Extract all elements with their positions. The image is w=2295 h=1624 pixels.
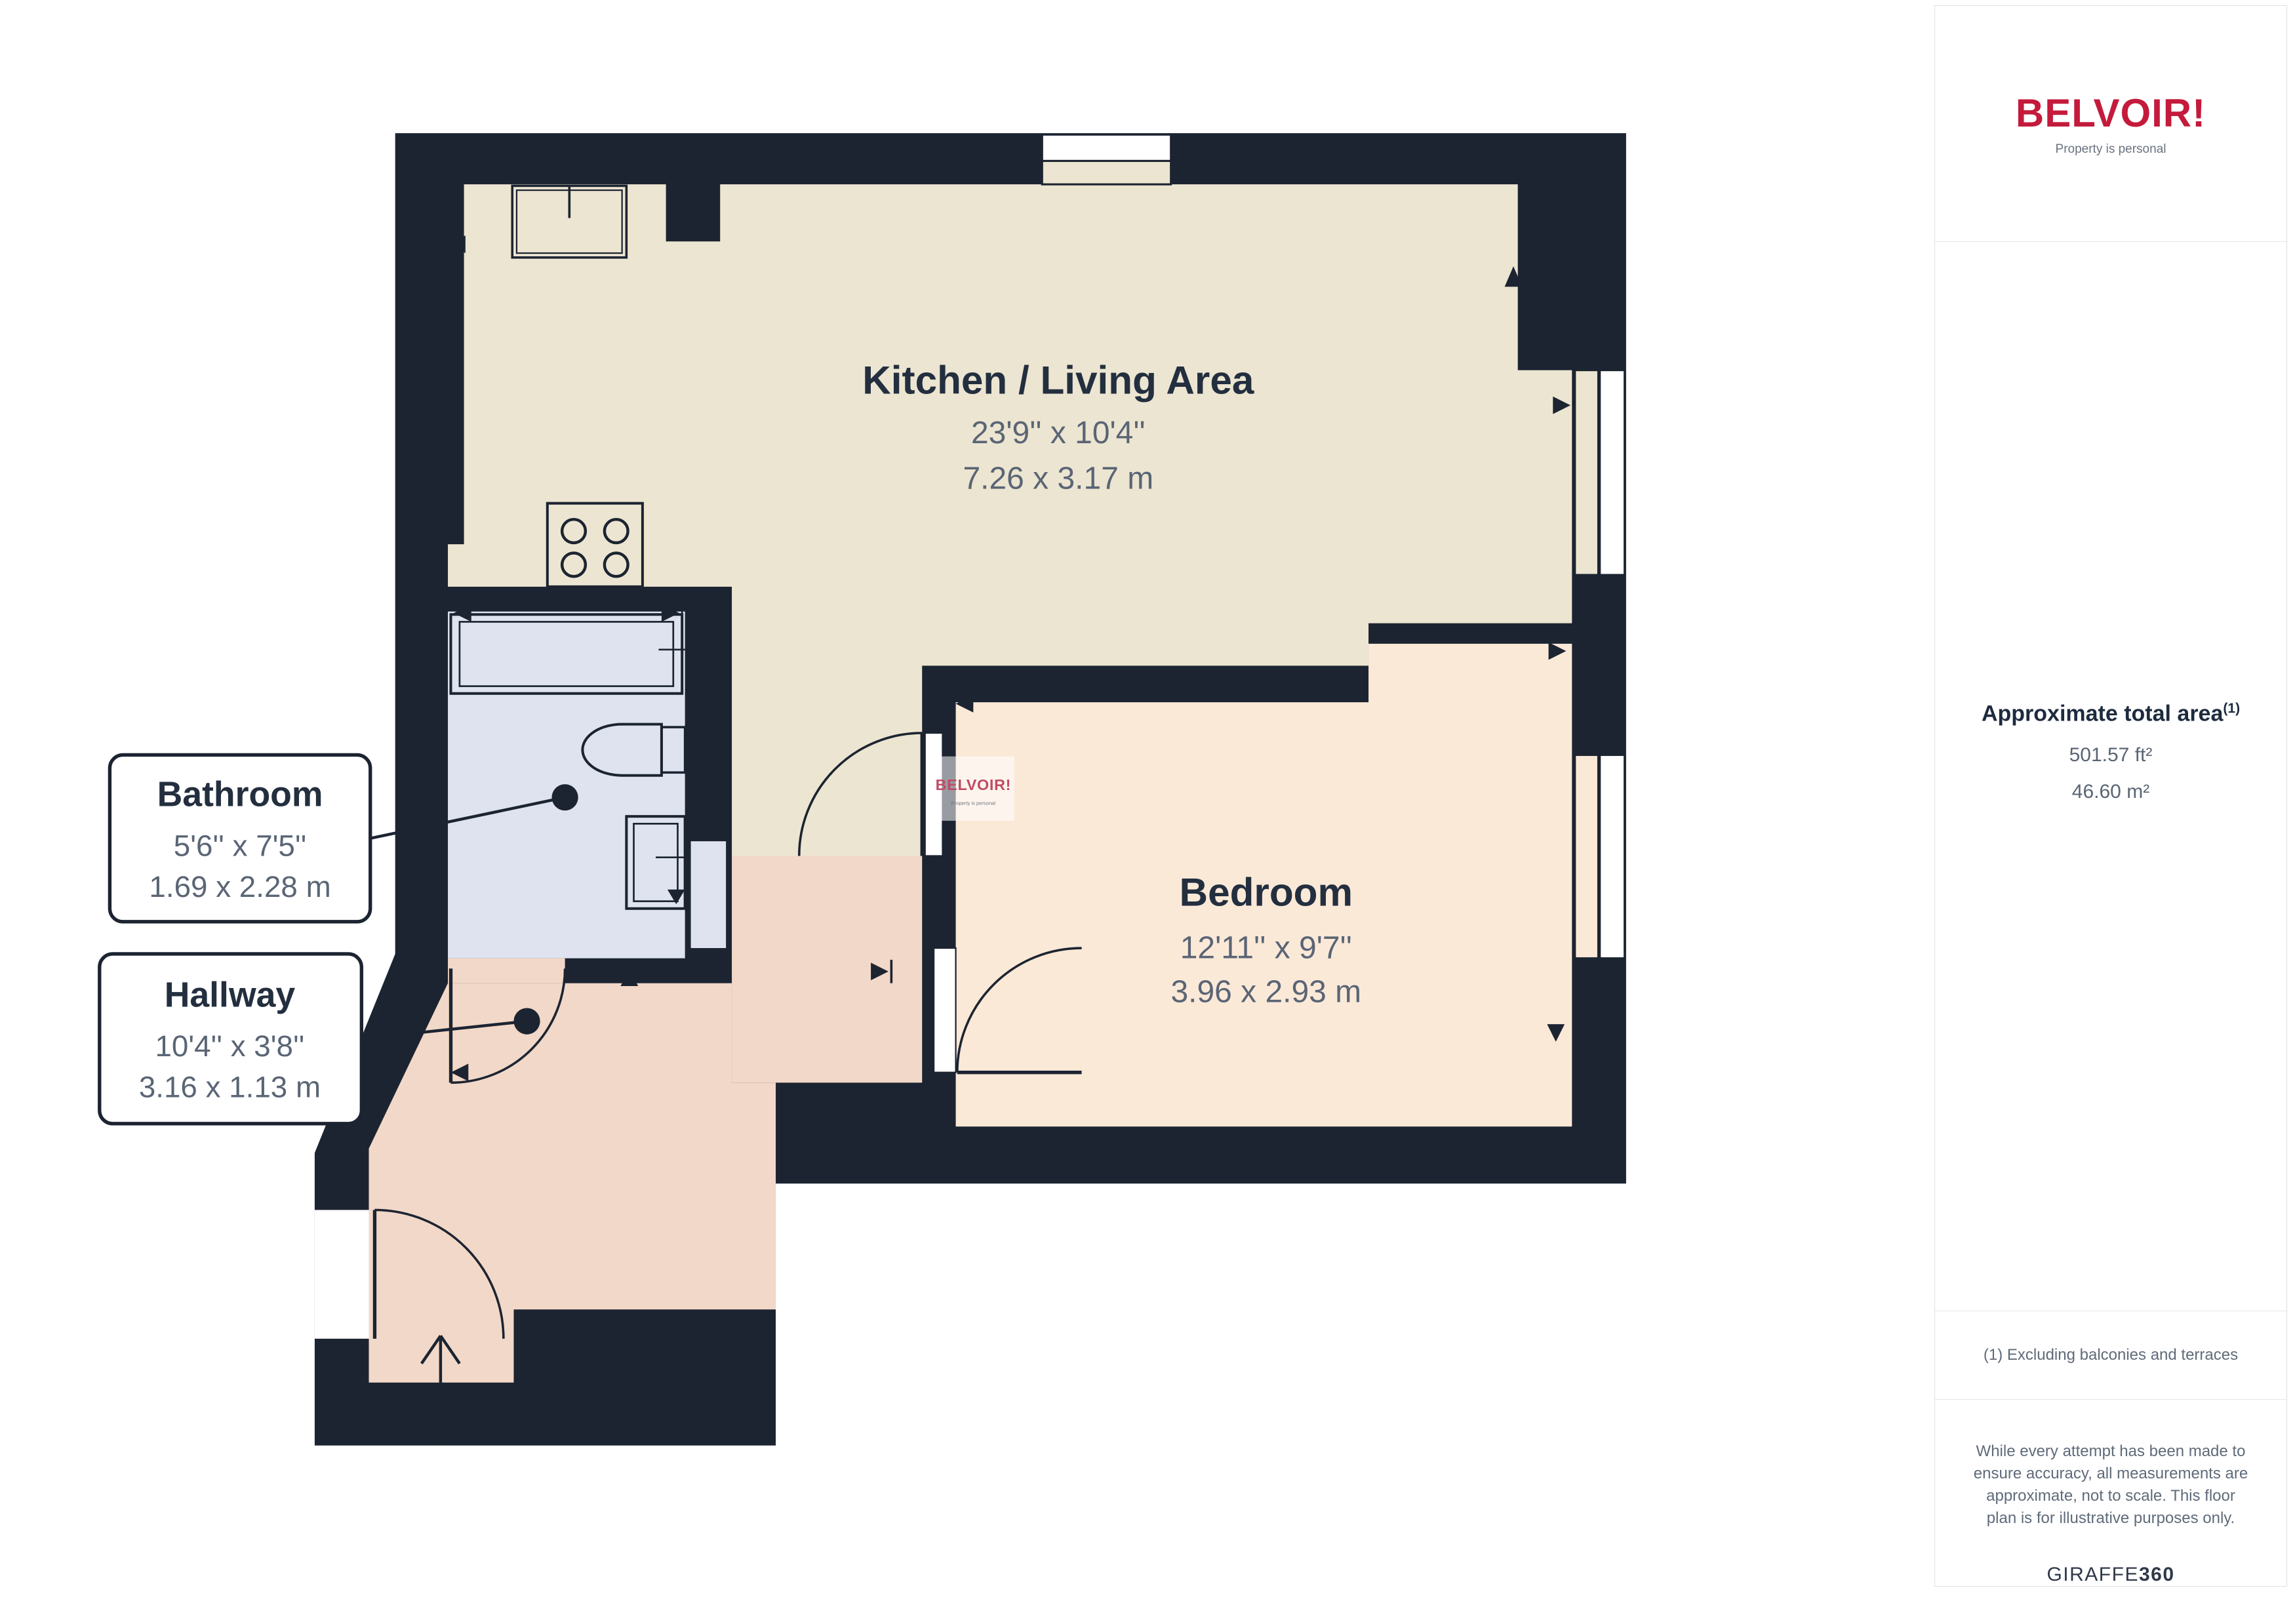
area-heading-text: Approximate total area xyxy=(1982,702,2223,726)
bathroom-leader-dot xyxy=(552,784,578,810)
bathroom-name: Bathroom xyxy=(157,776,323,814)
bedroom-imperial: 12'11'' x 9'7'' xyxy=(1180,931,1352,966)
brand-logo: BELVOIR! xyxy=(2016,90,2206,136)
stove xyxy=(548,504,643,587)
area-heading: Approximate total area(1) xyxy=(1982,701,2240,726)
bathroom-door-opening xyxy=(448,959,565,983)
toilet xyxy=(582,724,685,776)
watermark-tagline: Property is personal xyxy=(951,800,996,806)
kitchen-metric: 7.26 x 3.17 m xyxy=(963,461,1153,496)
kitchen-right-window xyxy=(1575,370,1625,575)
hallway-leader-dot xyxy=(513,1008,540,1035)
bedroom-metric: 3.96 x 2.93 m xyxy=(1170,975,1361,1010)
info-sidebar: BELVOIR! Property is personal Approximat… xyxy=(1934,5,2287,1587)
top-window xyxy=(1042,134,1170,184)
giraffe-logo-name: GIRAFFE xyxy=(2046,1564,2139,1585)
bathroom-cupboard xyxy=(691,841,727,948)
floor-plan-page: Kitchen / Living Area 23'9'' x 10'4'' 7.… xyxy=(0,0,2295,1624)
bathroom-imperial: 5'6'' x 7'5'' xyxy=(174,829,307,862)
watermark-brand: BELVOIR! xyxy=(936,776,1012,793)
hallway-metric: 3.16 x 1.13 m xyxy=(139,1071,321,1104)
area-metric: 46.60 m² xyxy=(2072,781,2149,803)
hallway-corridor-floor xyxy=(732,856,922,1082)
hallway-imperial: 10'4'' x 3'8'' xyxy=(155,1029,304,1063)
brand-tagline: Property is personal xyxy=(2056,142,2166,157)
disclaimer-text: While every attempt has been made to ens… xyxy=(1972,1440,2250,1530)
hallway-name: Hallway xyxy=(165,976,296,1014)
bedroom-right-window xyxy=(1575,755,1625,958)
area-section: Approximate total area(1) 501.57 ft² 46.… xyxy=(1935,242,2286,1311)
bedroom-name: Bedroom xyxy=(1180,869,1353,914)
footnote-section: (1) Excluding balconies and terraces xyxy=(1935,1311,2286,1400)
brand-block: BELVOIR! Property is personal xyxy=(1935,6,2286,242)
bathroom-metric: 1.69 x 2.28 m xyxy=(149,870,330,903)
kitchen-name: Kitchen / Living Area xyxy=(862,357,1254,402)
disclaimer-section: While every attempt has been made to ens… xyxy=(1935,1400,2286,1586)
kitchen-imperial: 23'9'' x 10'4'' xyxy=(971,416,1146,450)
area-imperial: 501.57 ft² xyxy=(2069,744,2153,766)
giraffe360-logo: GIRAFFE360 xyxy=(2046,1564,2174,1586)
bedroom-label: Bedroom 12'11'' x 9'7'' 3.96 x 2.93 m xyxy=(1170,869,1361,1009)
giraffe-logo-360: 360 xyxy=(2139,1564,2175,1585)
area-heading-footnote-marker: (1) xyxy=(2223,701,2240,716)
watermark: BELVOIR! Property is personal xyxy=(932,757,1014,821)
footnote-text: (1) Excluding balconies and terraces xyxy=(1984,1346,2238,1364)
